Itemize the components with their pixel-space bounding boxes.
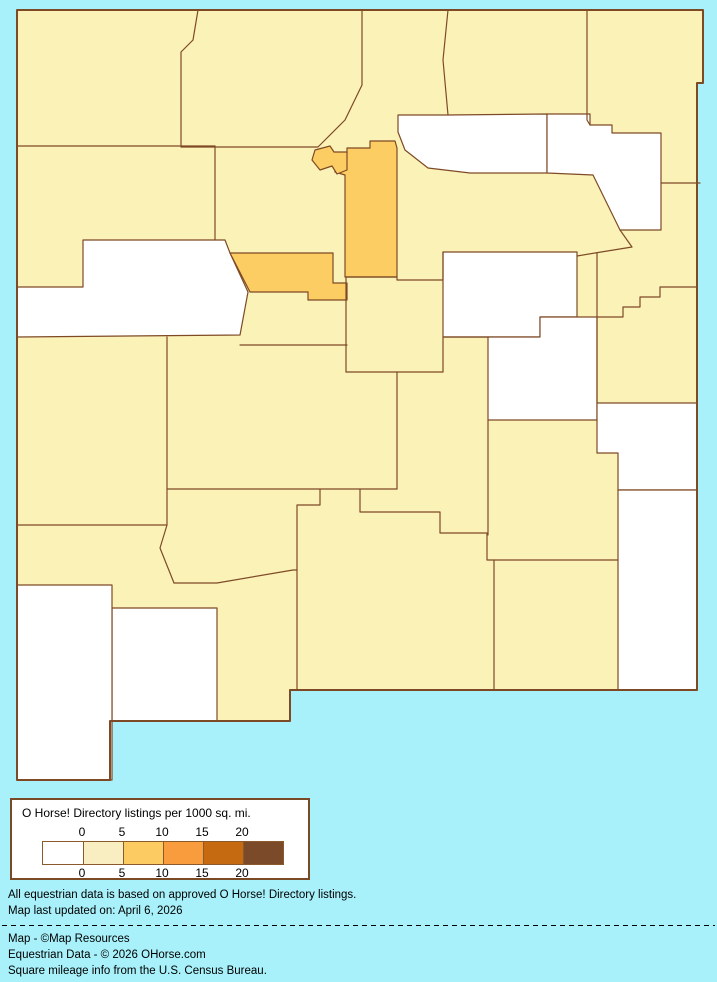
legend-tick-bottom-20: 20 [222,866,262,880]
legend-ticks-top: 05101520 [42,825,282,838]
legend-swatch-2 [123,842,163,864]
county-lea [618,490,697,690]
legend-tick-bottom-5: 5 [102,866,142,880]
legend-tick-top-10: 10 [142,825,182,839]
legend-swatch-5 [243,842,283,864]
legend-ticks-bottom: 05101520 [42,866,282,879]
legend-box: O Horse! Directory listings per 1000 sq.… [10,798,310,880]
legend-color-ramp [42,841,284,865]
dashed-separator [2,925,715,926]
legend-title: O Horse! Directory listings per 1000 sq.… [22,806,251,820]
page-background: O Horse! Directory listings per 1000 sq.… [0,0,717,982]
credit-equestrian-data: Equestrian Data - © 2026 OHorse.com [8,949,206,961]
legend-tick-top-20: 20 [222,825,262,839]
legend-tick-bottom-0: 0 [62,866,102,880]
footnote-last-updated: Map last updated on: April 6, 2026 [8,905,183,917]
legend-tick-top-0: 0 [62,825,102,839]
legend-tick-top-5: 5 [102,825,142,839]
county-hidalgo [17,585,112,780]
legend-swatch-3 [163,842,203,864]
footnote-data-source: All equestrian data is based on approved… [8,889,356,901]
legend-swatch-4 [203,842,243,864]
legend-swatch-0 [43,842,83,864]
credit-square-mileage: Square mileage info from the U.S. Census… [8,965,267,977]
legend-tick-bottom-15: 15 [182,866,222,880]
legend-tick-bottom-10: 10 [142,866,182,880]
legend-tick-top-15: 15 [182,825,222,839]
credit-map: Map - ©Map Resources [8,933,130,945]
new-mexico-choropleth-map [0,0,717,790]
legend-swatch-1 [83,842,123,864]
county-luna [112,608,217,721]
